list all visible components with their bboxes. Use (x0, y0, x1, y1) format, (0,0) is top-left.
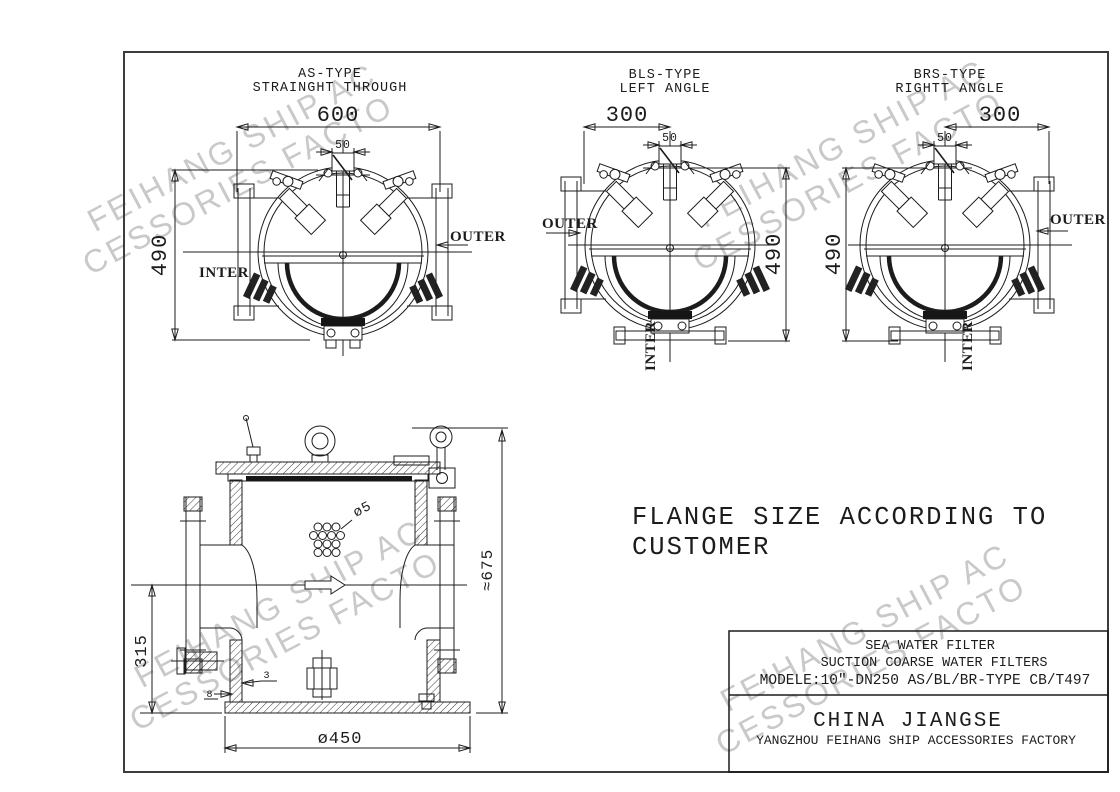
view-bls-title-line2: LEFT ANGLE (619, 82, 710, 97)
dim-neck-value: 50 (662, 132, 678, 145)
product-subtitle: SUCTION COARSE WATER FILTERS (821, 656, 1048, 671)
dim-inlet-height-value: 315 (133, 634, 152, 668)
outlet-label-group: OUTER (1037, 212, 1106, 234)
dim-neck-value: 50 (937, 132, 953, 145)
dim-height-value: 490 (822, 233, 847, 276)
view-as-title-line2: STRAINGHT THROUGH (253, 81, 408, 96)
dim-wall-thickness-value: 8 (206, 690, 213, 701)
view-bls-title-line1: BLS-TYPE (629, 68, 702, 83)
factory-name: YANGZHOU FEIHANG SHIP ACCESSORIES FACTOR… (756, 733, 1076, 748)
cover-gasket (246, 476, 412, 481)
view-as-title-line1: AS-TYPE (298, 67, 362, 82)
dim-height-value: 490 (762, 233, 787, 276)
outlet-label-group: OUTER (542, 216, 598, 236)
view-brs-title-line2: RIGHTT ANGLE (895, 82, 1004, 97)
model-number: MODELE:10"-DN250 AS/BL/BR-TYPE CB/T497 (760, 673, 1091, 689)
dim-plate-thickness-value: 3 (263, 671, 270, 682)
inlet-label: INTER (643, 321, 659, 371)
dim-width-value: 300 (606, 103, 649, 128)
outlet-label-group: OUTER (437, 229, 506, 248)
eyebolt-icon (305, 426, 335, 462)
flange-note-line1: FLANGE SIZE ACCORDING TO (632, 503, 1047, 532)
dim-height-value: 490 (148, 234, 173, 277)
dim-total-height-value: ≈675 (479, 549, 497, 591)
dim-bottom-dia-450: ø450 (225, 716, 470, 753)
drain-plug-icon (307, 650, 337, 700)
view-brs-title-line1: BRS-TYPE (914, 68, 987, 83)
dim-hole-dia: ø5 (351, 498, 375, 521)
company-name: CHINA JIANGSE (813, 710, 1003, 733)
outlet-label: OUTER (542, 216, 598, 232)
inlet-label: INTER (199, 265, 249, 281)
drawing-sheet: FEIHANG SHIP AC CESSORIES FACTO FEIHANG … (0, 0, 1120, 792)
flange-note-line2: CUSTOMER (632, 533, 770, 562)
bottom-plate (225, 702, 470, 713)
dim-width-value: 300 (979, 103, 1022, 128)
dim-bottom-dia-value: ø450 (318, 730, 363, 749)
dim-width-value: 600 (317, 103, 360, 128)
cover-plate (216, 462, 440, 474)
dim-neck-value: 50 (335, 139, 351, 152)
outlet-label: OUTER (1050, 212, 1106, 228)
inlet-label: INTER (960, 321, 976, 371)
outlet-label: OUTER (450, 229, 506, 245)
vent-cock-icon (244, 416, 261, 463)
cad-drawing: FEIHANG SHIP AC CESSORIES FACTO FEIHANG … (0, 0, 1120, 792)
product-name: SEA WATER FILTER (865, 639, 995, 654)
